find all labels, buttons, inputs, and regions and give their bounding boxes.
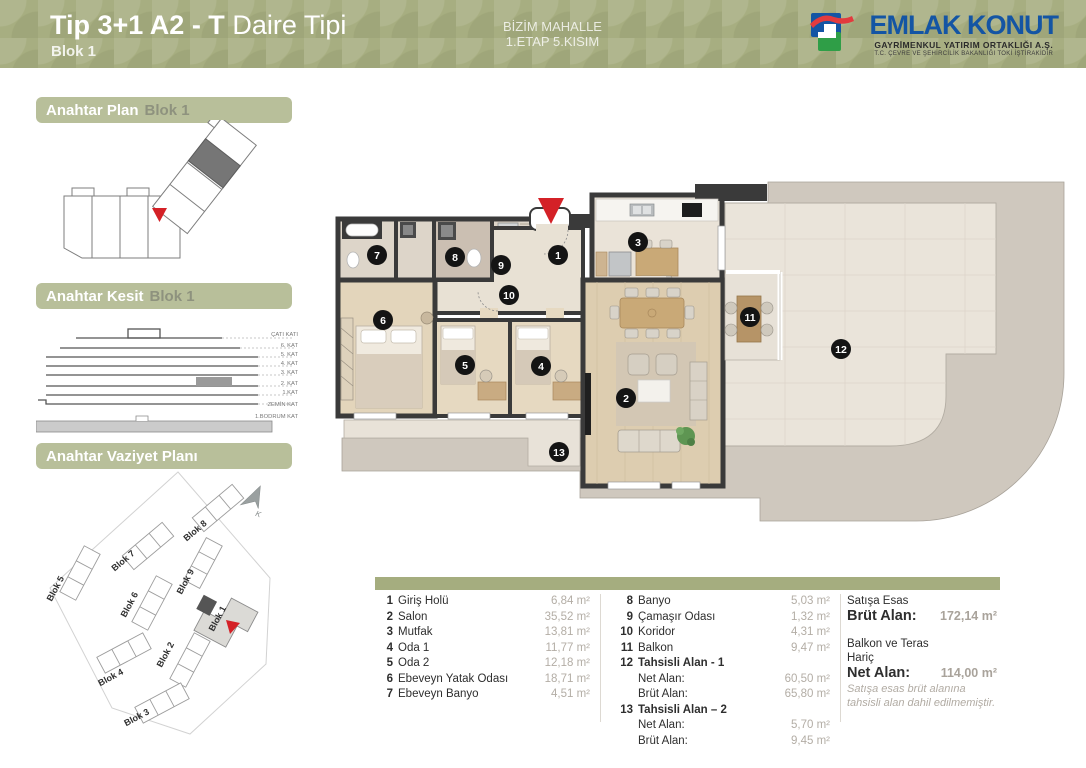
room-list-left: 1Giriş Holü6,84 m² 2Salon35,52 m² 3Mutfa… — [375, 594, 590, 703]
project-line2: 1.ETAP 5.KISIM — [440, 34, 665, 49]
project-name: BİZİM MAHALLE 1.ETAP 5.KISIM — [440, 19, 665, 49]
room-row: 1Giriş Holü6,84 m² — [375, 594, 590, 610]
svg-text:5: 5 — [462, 360, 468, 372]
floor-label: 2. KAT — [281, 381, 299, 387]
logo-name: EMLAK KONUT — [870, 12, 1058, 38]
page-title-bold: Tip 3+1 A2 - T — [50, 10, 225, 40]
room-row: 3Mutfak13,81 m² — [375, 625, 590, 641]
svg-text:2: 2 — [623, 393, 629, 405]
table-divider — [600, 594, 601, 722]
blok-label: Blok 2 — [155, 640, 177, 669]
table-divider — [840, 594, 841, 722]
site-plan-drawing: K Blok 1 Blok 2 Blok 3 Blok 4 Blok 5 Blo… — [40, 468, 292, 746]
badge-10: 10 — [499, 285, 519, 305]
badge-1: 1 — [548, 245, 568, 265]
net-alan: Net Alan: 114,00 m² — [847, 665, 997, 682]
key-plan-drawing — [52, 120, 290, 272]
svg-text:6: 6 — [380, 315, 386, 327]
badge-4: 4 — [531, 356, 551, 376]
floor-label: 6. KAT — [281, 343, 299, 349]
svg-text:11: 11 — [744, 312, 755, 324]
emlak-konut-house-icon — [808, 8, 862, 61]
key-section-highlighted-floor — [196, 377, 232, 386]
header-band: Tip 3+1 A2 - T Daire Tipi Blok 1 BİZİM M… — [0, 0, 1086, 68]
badge-9: 9 — [491, 255, 511, 275]
page-subtitle: Blok 1 — [51, 43, 96, 60]
svg-text:9: 9 — [498, 260, 504, 272]
room-subrow: Brüt Alan:9,45 m² — [615, 734, 830, 750]
badge-12: 12 — [831, 339, 851, 359]
badge-2: 2 — [616, 388, 636, 408]
north-arrow-icon: K — [238, 482, 270, 520]
master-bedroom — [338, 280, 435, 416]
floor-label: ZEMİN KAT — [268, 401, 299, 408]
svg-text:7: 7 — [374, 250, 380, 262]
floor-plan-drawing: 1 2 3 4 5 6 7 8 9 10 11 12 13 — [330, 168, 1070, 528]
svg-text:K: K — [254, 509, 262, 519]
key-plan-subtitle: Blok 1 — [145, 102, 190, 119]
project-line1: BİZİM MAHALLE — [440, 19, 665, 34]
svg-text:12: 12 — [835, 344, 847, 356]
site-plan-title: Anahtar Vaziyet Planı — [46, 448, 198, 465]
logo-line1: GAYRİMENKUL YATIRIM ORTAKLIĞI A.Ş. — [874, 40, 1053, 50]
floor-label: 4. KAT — [281, 361, 299, 367]
badge-3: 3 — [628, 232, 648, 252]
svg-text:8: 8 — [452, 252, 458, 264]
room-row: 8Banyo5,03 m² — [615, 594, 830, 610]
page-title-rest: Daire Tipi — [225, 10, 347, 40]
floor-label: 3. KAT — [281, 370, 299, 376]
svg-text:1: 1 — [555, 250, 561, 262]
room-row: 2Salon35,52 m² — [375, 610, 590, 626]
key-section-title: Anahtar Kesit — [46, 288, 144, 305]
brut-alan: Brüt Alan: 172,14 m² — [847, 608, 997, 625]
living-room — [583, 280, 723, 489]
key-section-header: Anahtar Kesit Blok 1 — [36, 283, 292, 309]
room-subrow: Net Alan:60,50 m² — [615, 672, 830, 688]
room-row: 10Koridor4,31 m² — [615, 625, 830, 641]
svg-text:4: 4 — [538, 361, 544, 373]
room-row: 11Balkon9,47 m² — [615, 641, 830, 657]
svg-text:10: 10 — [503, 290, 515, 302]
key-section-drawing: ÇATI KATI 6. KAT 5. KAT 4. KAT 3. KAT 2.… — [36, 326, 300, 436]
floor-label: ÇATI KATI — [271, 332, 298, 338]
badge-8: 8 — [445, 247, 465, 267]
summary-note: Satışa esas brüt alanına tahsisli alan d… — [847, 683, 997, 710]
badge-11: 11 — [740, 307, 760, 327]
summary-line2b: Hariç — [847, 651, 997, 665]
badge-5: 5 — [455, 355, 475, 375]
key-section-subtitle: Blok 1 — [150, 288, 195, 305]
room-row: 7Ebeveyn Banyo4,51 m² — [375, 687, 590, 703]
site-plan-header: Anahtar Vaziyet Planı — [36, 443, 292, 469]
room-subrow: Brüt Alan:65,80 m² — [615, 687, 830, 703]
key-plan-title: Anahtar Plan — [46, 102, 139, 119]
floor-label: 1.KAT — [282, 390, 298, 396]
apartment-type-sheet: Tip 3+1 A2 - T Daire Tipi Blok 1 BİZİM M… — [0, 0, 1086, 768]
svg-text:3: 3 — [635, 237, 641, 249]
badge-6: 6 — [373, 310, 393, 330]
room-row: 9Çamaşır Odası1,32 m² — [615, 610, 830, 626]
area-summary: Satışa Esas Brüt Alan: 172,14 m² Balkon … — [847, 594, 997, 710]
room-row: 5Oda 212,18 m² — [375, 656, 590, 672]
room-list-mid: 8Banyo5,03 m² 9Çamaşır Odası1,32 m² 10Ko… — [615, 594, 830, 749]
emlak-konut-logo: EMLAK KONUT GAYRİMENKUL YATIRIM ORTAKLIĞ… — [808, 8, 1058, 61]
page-title: Tip 3+1 A2 - T Daire Tipi — [50, 10, 346, 40]
floor-label: 1.BODRUM KAT — [255, 414, 299, 420]
badge-7: 7 — [367, 245, 387, 265]
logo-text: EMLAK KONUT GAYRİMENKUL YATIRIM ORTAKLIĞ… — [870, 12, 1058, 57]
room-row: 12Tahsisli Alan - 1 — [615, 656, 830, 672]
badge-13: 13 — [549, 442, 569, 462]
room-subrow: Net Alan:5,70 m² — [615, 718, 830, 734]
floor-label: 5. KAT — [281, 352, 299, 358]
summary-line1: Satışa Esas — [847, 594, 997, 608]
logo-line2: T.C. ÇEVRE VE ŞEHİRCİLİK BAKANLIĞI TOKİ … — [874, 51, 1053, 57]
summary-line2a: Balkon ve Teras — [847, 637, 997, 651]
table-header-bar — [375, 577, 1000, 590]
bedroom-windows — [354, 413, 568, 419]
room-row: 13Tahsisli Alan – 2 — [615, 703, 830, 719]
svg-text:13: 13 — [553, 447, 565, 459]
room-row: 4Oda 111,77 m² — [375, 641, 590, 657]
room-row: 6Ebeveyn Yatak Odası18,71 m² — [375, 672, 590, 688]
